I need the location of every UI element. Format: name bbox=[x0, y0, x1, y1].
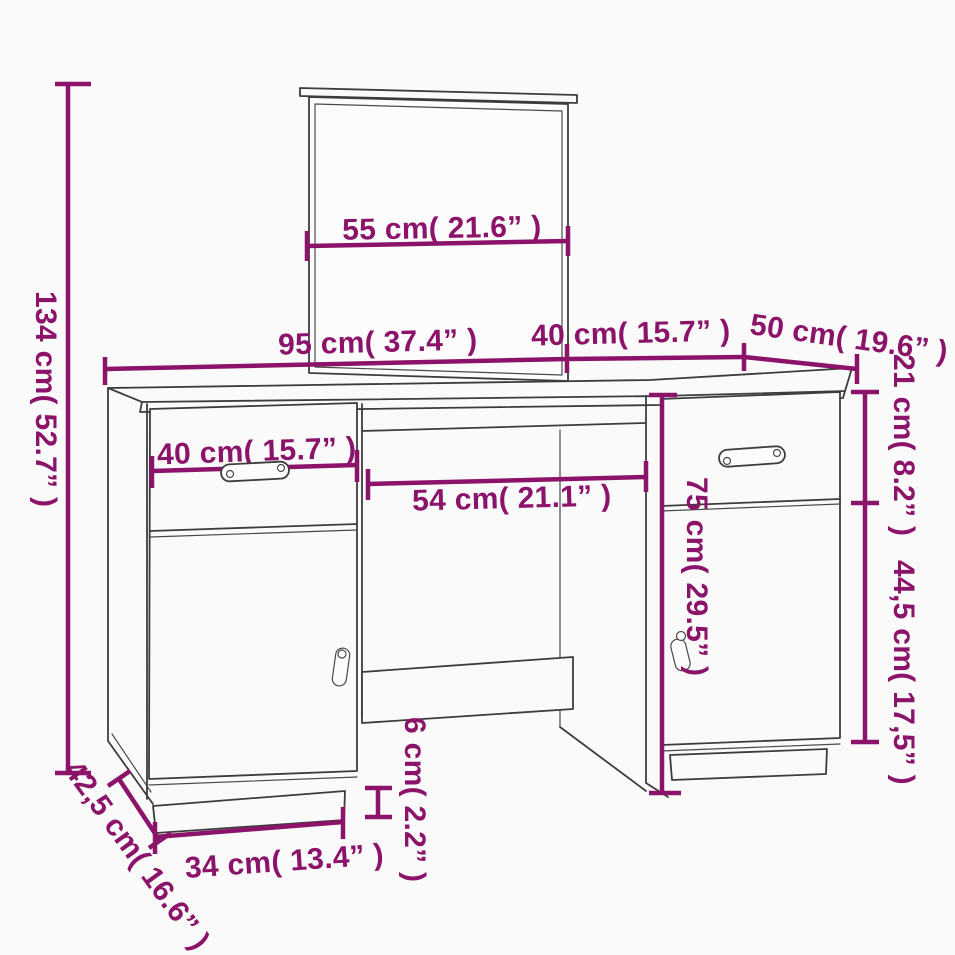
right-plinth bbox=[670, 749, 827, 780]
product-dimension-diagram: 134 cm( 52.7” ) 55 cm( 21.6” ) 95 cm( 37… bbox=[0, 0, 955, 955]
dim-right-drawer-height-label: 21 cm( 8.2” ) bbox=[887, 354, 920, 536]
left-drawer-handle-icon bbox=[221, 461, 290, 482]
dim-desk-width-label: 95 cm( 37.4” ) bbox=[278, 323, 478, 361]
dim-right-heights: 21 cm( 8.2” ) 44,5 cm( 17,5” ) bbox=[851, 354, 920, 785]
dim-mirror-width-label: 55 cm( 21.6” ) bbox=[342, 210, 542, 246]
dim-knee-space-width: 54 cm( 21.1” ) bbox=[368, 461, 646, 518]
kneehole-apron bbox=[362, 423, 645, 431]
dim-knee-space-width-label: 54 cm( 21.1” ) bbox=[412, 479, 612, 517]
floor-line bbox=[560, 727, 646, 791]
dim-total-height-label: 134 cm( 52.7” ) bbox=[29, 291, 62, 507]
modesty-panel bbox=[362, 657, 573, 723]
dim-plinth-height-label: 6 cm( 2.2” ) bbox=[398, 717, 431, 882]
dim-plinth-width-label: 34 cm( 13.4” ) bbox=[184, 838, 385, 885]
left-plinth bbox=[153, 791, 345, 833]
dim-right-door-height-label: 44,5 cm( 17,5” ) bbox=[887, 560, 920, 785]
dim-total-height: 134 cm( 52.7” ) bbox=[29, 84, 91, 773]
dim-cabinet-body-height-label: 75 cm( 29.5” ) bbox=[680, 477, 713, 676]
right-drawer-handle-icon bbox=[718, 446, 785, 468]
left-side-panel-inner bbox=[112, 734, 151, 792]
dim-right-cabinet-top-width-label: 40 cm( 15.7” ) bbox=[531, 314, 731, 352]
